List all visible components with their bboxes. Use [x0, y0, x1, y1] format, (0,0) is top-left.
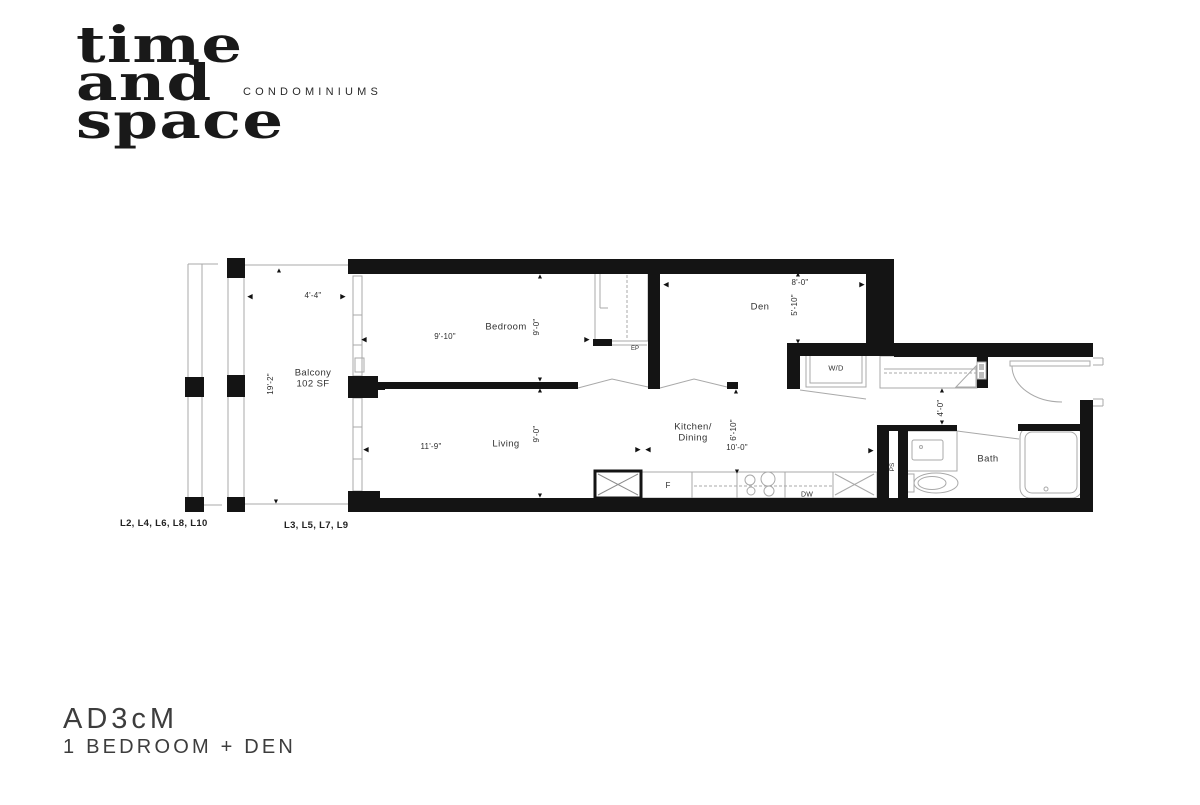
- balcony-area-label: 102 SF: [296, 379, 329, 389]
- dim-arrow-down-icon: ▼: [537, 377, 544, 384]
- living-width-dim: 11'-9": [421, 443, 442, 451]
- bedroom-depth-dim: 9'-0": [533, 319, 541, 336]
- den-label: Den: [751, 302, 770, 312]
- brand-logo: time and space: [76, 26, 284, 140]
- bedroom-label: Bedroom: [485, 322, 526, 332]
- dim-arrow-down-icon: ▼: [795, 339, 802, 346]
- kitchen-label-line1: Kitchen/: [674, 422, 712, 432]
- dim-arrow-down-icon: ▼: [273, 499, 280, 506]
- bedroom-width-dim: 9'-10": [434, 333, 456, 341]
- unit-type: 1 BEDROOM + DEN: [63, 736, 296, 759]
- dim-arrow-left-icon: ◀: [363, 447, 368, 454]
- balcony-label: Balcony: [295, 368, 332, 378]
- floorplan-page: time and space CONDOMINIUMS: [0, 0, 1200, 805]
- dim-arrow-down-icon: ▼: [939, 420, 946, 427]
- levels-even-label: L2, L4, L6, L8, L10: [120, 519, 208, 529]
- den-width-dim: 8'-0": [792, 279, 809, 287]
- dim-arrow-right-icon: ▶: [584, 337, 589, 344]
- dim-arrow-up-icon: ▲: [537, 274, 544, 281]
- kitchen-width-dim: 10'-0": [726, 444, 748, 452]
- washer-dryer-label: W/D: [828, 364, 843, 372]
- brand-word-3: space: [76, 102, 284, 140]
- dishwasher-label: DW: [801, 492, 813, 499]
- balcony-depth-dim: 19'-2": [267, 373, 275, 395]
- dim-arrow-left-icon: ◀: [247, 294, 252, 301]
- hall-width-dim: 4'-0": [937, 400, 945, 417]
- electrical-panel-label: EP: [631, 346, 639, 352]
- den-depth-dim: 5'-10": [791, 294, 799, 316]
- dim-arrow-up-icon: ▲: [795, 272, 802, 279]
- dim-arrow-right-icon: ▶: [859, 282, 864, 289]
- kitchen-depth-dim: 6'-10": [730, 419, 738, 441]
- dim-arrow-left-icon: ◀: [361, 337, 366, 344]
- fridge-label: F: [665, 482, 670, 490]
- bath-label: Bath: [977, 454, 998, 464]
- dim-arrow-left-icon: ◀: [663, 282, 668, 289]
- dim-arrow-down-icon: ▼: [734, 469, 741, 476]
- dim-arrow-right-icon: ▶: [868, 448, 873, 455]
- unit-code: AD3cM: [63, 703, 178, 736]
- levels-odd-label: L3, L5, L7, L9: [284, 521, 348, 531]
- dim-arrow-right-icon: ▶: [635, 447, 640, 454]
- dim-arrow-right-icon: ▶: [340, 294, 345, 301]
- brand-tagline: CONDOMINIUMS: [243, 86, 382, 98]
- dim-arrow-up-icon: ▲: [939, 388, 946, 395]
- dim-arrow-down-icon: ▼: [537, 493, 544, 500]
- dim-arrow-up-icon: ▲: [537, 388, 544, 395]
- dim-arrow-left-icon: ◀: [645, 447, 650, 454]
- living-label: Living: [492, 439, 519, 449]
- kitchen-label-line2: Dining: [678, 433, 707, 443]
- dim-arrow-up-icon: ▲: [733, 389, 740, 396]
- pipe-shaft-label: PS: [890, 463, 897, 472]
- balcony-width-dim: 4'-4": [305, 292, 322, 300]
- living-depth-dim: 9'-0": [533, 426, 541, 443]
- dim-arrow-up-icon: ▲: [276, 268, 283, 275]
